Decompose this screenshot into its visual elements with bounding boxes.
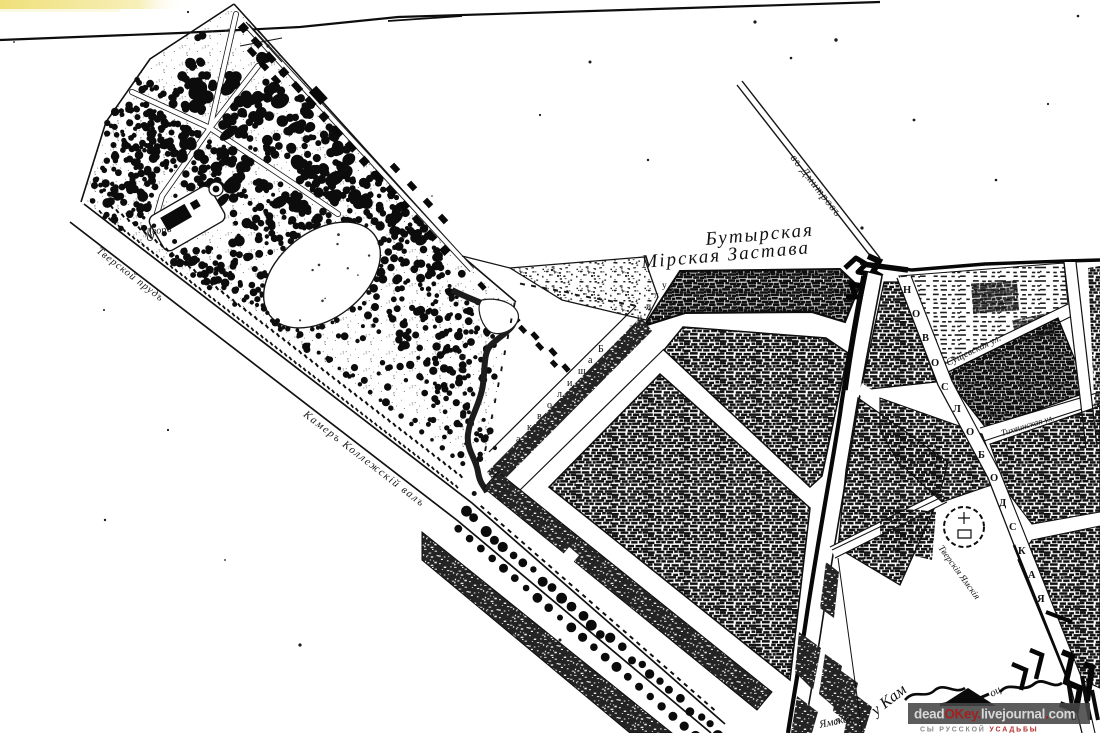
svg-text:и: и	[567, 378, 573, 389]
svg-text:С: С	[941, 382, 949, 393]
svg-text:О: О	[966, 427, 974, 438]
svg-text:ш: ш	[578, 366, 586, 377]
svg-text:Д: Д	[999, 498, 1007, 509]
svg-text:л: л	[654, 291, 659, 301]
svg-text:и: и	[646, 302, 651, 312]
svg-text:у: у	[662, 281, 667, 291]
svg-text:О: О	[931, 358, 939, 369]
svg-text:ц: ц	[637, 313, 642, 323]
svg-text:deadOKey.livejournal.com: deadOKey.livejournal.com	[914, 707, 1076, 722]
svg-text:к: к	[527, 422, 532, 433]
svg-text:в: в	[537, 411, 542, 422]
svg-text:Н: Н	[903, 285, 911, 296]
svg-text:а: а	[588, 355, 593, 366]
svg-text:О: О	[912, 309, 920, 320]
svg-text:С: С	[1009, 522, 1017, 533]
svg-text:Л: Л	[953, 404, 961, 415]
svg-text:Б: Б	[598, 344, 604, 355]
svg-text:СЫ РУССКОЙ УСАДЬБЫ: СЫ РУССКОЙ УСАДЬБЫ	[920, 725, 1038, 733]
svg-text:В: В	[922, 333, 929, 344]
svg-text:а: а	[516, 434, 521, 445]
svg-text:л: л	[557, 389, 562, 400]
svg-text:Б: Б	[978, 450, 985, 461]
svg-text:о: о	[547, 400, 552, 411]
svg-text:А: А	[1028, 570, 1036, 581]
svg-text:О: О	[990, 473, 998, 484]
